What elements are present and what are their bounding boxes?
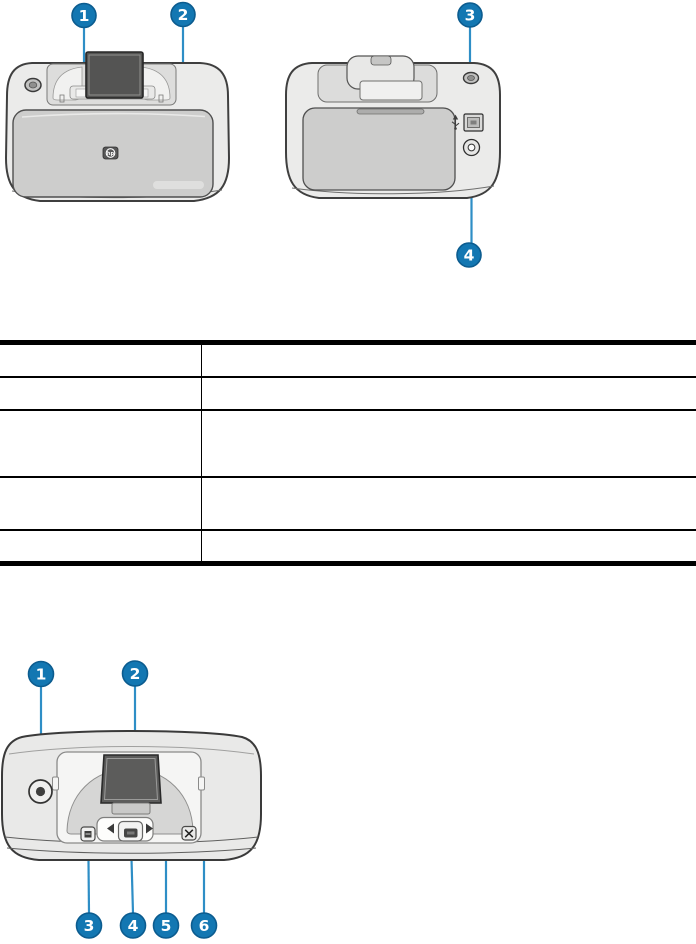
table-row [0,478,696,531]
screen [101,755,161,803]
callout-2-badge: 2 [123,661,148,686]
recess-notch-right [199,777,205,790]
printer-back-view [286,56,500,198]
callout-1-badge: 1 [72,4,96,28]
table-row [0,531,696,561]
figure-front-back-view: hp [0,0,696,300]
table-row [0,378,696,411]
callout-4-badge: 4 [121,913,146,938]
paper-support [360,81,422,100]
power-button-top-dot [468,76,475,81]
menu-button [81,827,95,841]
callout-1-badge: 1 [29,662,54,687]
printer-front-view: hp [6,52,229,201]
part-label-cell [0,345,202,376]
svg-text:2: 2 [130,665,141,683]
callout-4-badge: 4 [457,243,481,267]
callout-3-badge: 3 [77,913,102,938]
print-ok-button [119,822,143,842]
screen-hinge [112,803,150,814]
screen [86,52,143,98]
part-label-cell [0,411,202,476]
svg-text:3: 3 [465,6,476,24]
power-port [464,140,480,156]
parts-table [0,340,696,566]
part-description-cell [202,345,696,376]
part-description-cell [202,378,696,409]
callout-2-badge: 2 [171,3,195,27]
part-label-cell [0,478,202,529]
part-description-cell [202,478,696,529]
callout-5-badge: 5 [154,913,179,938]
handle-notch [371,56,391,65]
part-label-cell [0,531,202,561]
svg-text:4: 4 [128,917,139,935]
figure-control-panel: 1 2 3 4 5 6 [0,600,300,944]
svg-text:1: 1 [36,665,47,683]
model-name-plate [153,181,204,189]
cancel-button [182,827,196,841]
table-row [0,345,696,378]
part-description-cell [202,531,696,561]
part-label-cell [0,378,202,409]
table-row [0,411,696,478]
hp-logo-icon: hp [103,147,118,159]
svg-text:6: 6 [199,917,210,935]
printer-top-view [2,731,261,860]
door-slot [357,109,424,114]
svg-text:2: 2 [178,6,189,24]
part-description-cell [202,411,696,476]
manual-page: hp [0,0,696,944]
recess-notch-left [53,777,59,790]
callout-6-badge: 6 [192,913,217,938]
back-door [303,108,455,190]
power-icon [36,787,45,796]
svg-text:4: 4 [464,246,475,264]
power-button-top-dot [29,82,37,88]
callout-3-badge: 3 [458,3,482,27]
power-button [29,780,52,803]
svg-text:3: 3 [84,917,95,935]
svg-text:1: 1 [79,7,90,25]
usb-port [464,114,483,131]
svg-text:hp: hp [107,151,115,157]
svg-text:5: 5 [161,917,172,935]
